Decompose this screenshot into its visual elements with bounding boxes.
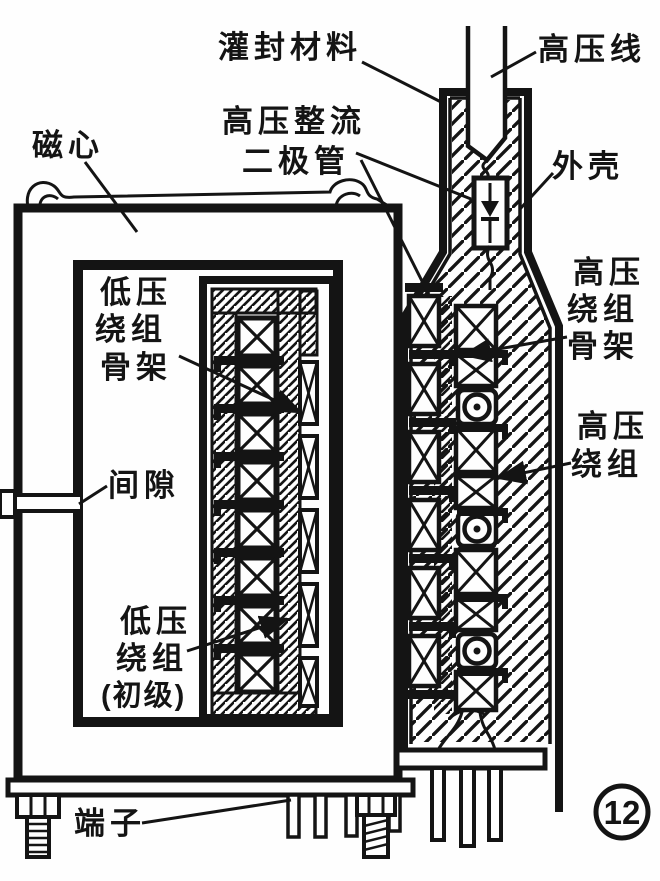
bobbin-flange bbox=[457, 508, 508, 516]
bobbin-flange bbox=[409, 418, 456, 427]
label-lv-bobbin-3: 骨架 bbox=[100, 350, 172, 385]
label-lv-bobbin-1: 低压 bbox=[99, 275, 172, 310]
transformer-cross-section-figure: 磁心 灌封材料 高压线 高压整流 二极管 外壳 低压 绕组 骨架 间隙 低压 绕… bbox=[0, 0, 660, 881]
diagram-canvas: 磁心 灌封材料 高压线 高压整流 二极管 外壳 低压 绕组 骨架 间隙 低压 绕… bbox=[0, 0, 660, 881]
label-hv-bobbin-1: 高压 bbox=[573, 255, 645, 290]
bobbin-flange bbox=[457, 594, 508, 602]
label-hv-rectifier-2: 二极管 bbox=[242, 144, 350, 179]
label-lv-winding-3: (初级) bbox=[101, 678, 186, 712]
leader-terminal bbox=[142, 800, 291, 823]
terminal-pin bbox=[489, 768, 501, 840]
leader-potting bbox=[362, 62, 445, 104]
base-plate-left bbox=[8, 780, 413, 857]
label-hv-wire: 高压线 bbox=[538, 32, 646, 67]
label-case: 外壳 bbox=[552, 149, 624, 184]
label-hv-winding-2: 绕组 bbox=[571, 447, 643, 482]
lv-bobbin-cheek bbox=[300, 291, 317, 355]
bobbin-flange bbox=[457, 668, 508, 676]
bobbin-flange bbox=[409, 554, 456, 563]
gap-shim-tab bbox=[0, 491, 15, 517]
label-lv-bobbin-2: 绕组 bbox=[95, 312, 167, 347]
terminal-pin bbox=[432, 768, 444, 840]
bobbin-flange bbox=[409, 486, 456, 495]
label-hv-winding-1: 高压 bbox=[577, 409, 649, 444]
label-hv-rectifier-1: 高压整流 bbox=[222, 104, 366, 139]
label-potting: 灌封材料 bbox=[218, 30, 362, 65]
figure-number-badge: 12 bbox=[596, 786, 648, 838]
mounting-bolt-right bbox=[357, 795, 395, 857]
base-plate-right bbox=[397, 750, 545, 846]
lv-winding-assembly bbox=[203, 280, 333, 718]
bobbin-flange bbox=[457, 424, 508, 432]
label-core: 磁心 bbox=[32, 128, 104, 163]
mounting-bolt-left bbox=[17, 795, 59, 857]
bobbin-flange bbox=[409, 622, 456, 631]
lv-bobbin-center-tube bbox=[278, 289, 300, 693]
label-lv-winding-1: 低压 bbox=[119, 604, 192, 639]
label-hv-bobbin-2: 绕组 bbox=[567, 292, 639, 327]
bobbin-flange bbox=[409, 350, 456, 359]
label-hv-bobbin-3: 骨架 bbox=[567, 329, 639, 364]
figure-number: 12 bbox=[604, 794, 641, 831]
label-lv-winding-2: 绕组 bbox=[116, 641, 188, 676]
label-gap: 间隙 bbox=[108, 468, 180, 503]
label-terminal: 端子 bbox=[74, 806, 146, 841]
terminal-pin bbox=[315, 795, 326, 837]
terminal-pin bbox=[461, 768, 474, 846]
